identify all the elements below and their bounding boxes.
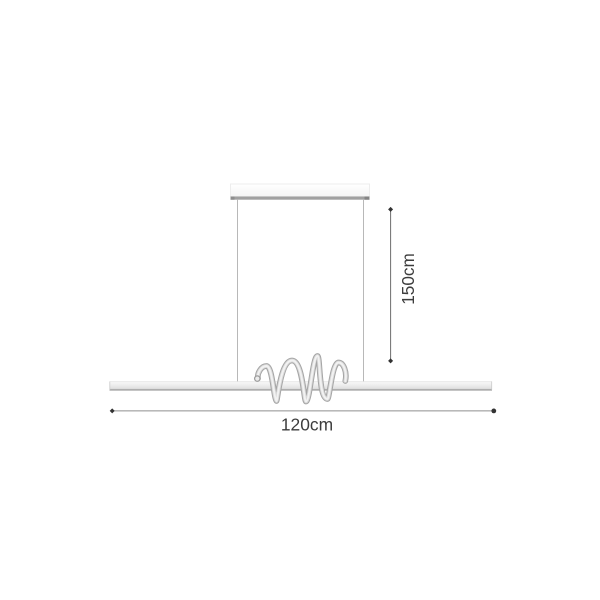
svg-text:120cm: 120cm bbox=[281, 415, 333, 435]
svg-text:150cm: 150cm bbox=[398, 253, 418, 305]
